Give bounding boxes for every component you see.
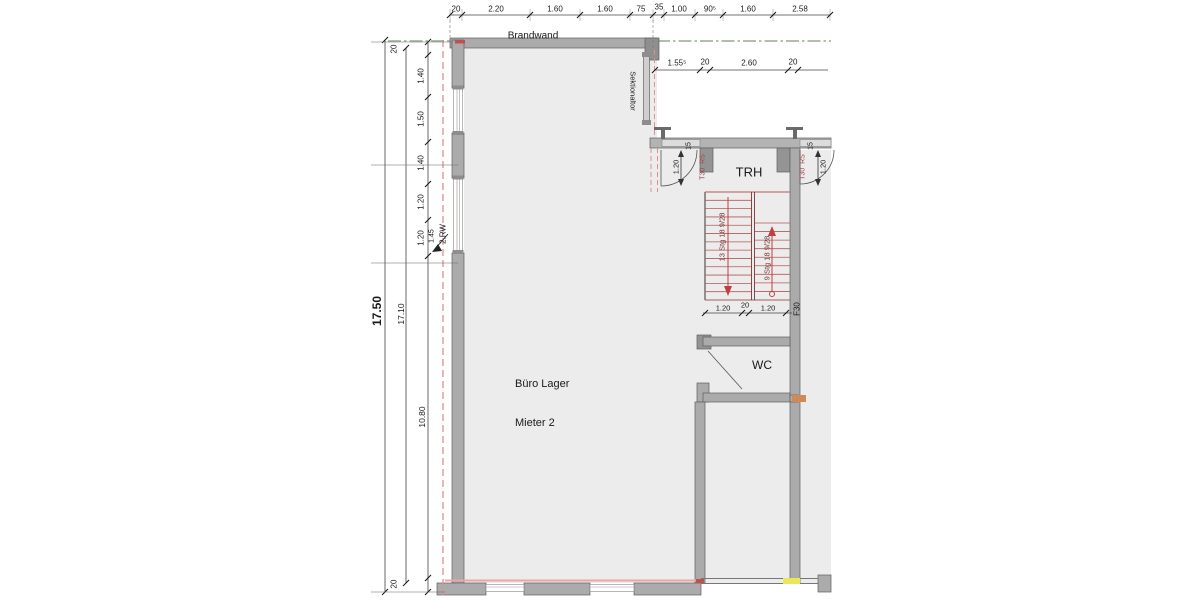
dim-top-2: 1.60 xyxy=(547,5,563,14)
stair-chain-0: 1.20 xyxy=(716,304,731,313)
trh-room-label: TRH xyxy=(736,165,763,180)
dim-ur-3: 20 xyxy=(789,58,798,67)
door-left-width: 1.20 xyxy=(672,160,681,175)
room-label-line1: Büro Lager xyxy=(515,378,569,391)
dim-ur-2: 2.60 xyxy=(741,59,757,68)
dim-left-seg-4: 1.20 xyxy=(417,230,426,246)
room-label-buero-lager: Büro Lager Mieter 2 xyxy=(515,352,569,443)
dim-top-1: 2.20 xyxy=(488,5,504,14)
door-right-width: 1.20 xyxy=(819,160,828,175)
door-left-type-label: T30 RS xyxy=(700,154,707,180)
dim-ur-0: 1.55⁵ xyxy=(668,59,687,68)
door-right-offset: 15 xyxy=(808,142,815,150)
dim-top-8: 1.60 xyxy=(740,5,756,14)
dim-left-lower: 10.80 xyxy=(417,406,427,427)
dim-left-bottom-offset: 20 xyxy=(390,580,399,589)
dim-rw: 1.45 xyxy=(429,229,436,243)
dim-top-7: 90⁵ xyxy=(704,5,716,14)
dim-top-9: 2.58 xyxy=(792,5,808,14)
stair-chain-1: 20 xyxy=(741,301,749,310)
plan-linework xyxy=(0,0,1200,600)
dim-top-0: 20 xyxy=(452,5,461,14)
dim-top-5: 35 xyxy=(655,3,664,12)
dim-top-6: 1.00 xyxy=(671,5,687,14)
dim-top-4: 75 xyxy=(637,5,646,14)
sektionaltor-leaf xyxy=(642,52,651,125)
brandwand-label: Brandwand xyxy=(508,31,559,42)
dim-left-seg-0: 1.40 xyxy=(417,68,426,84)
door-left-offset: 15 xyxy=(686,142,693,150)
room-label-line2: Mieter 2 xyxy=(515,417,569,430)
f30-wall-label: F30 xyxy=(793,302,802,316)
sektionaltor-label: Sektionaltor xyxy=(629,71,638,111)
dim-left-top-offset: 20 xyxy=(390,45,399,54)
door-right-type-label: T30 RS xyxy=(800,154,807,180)
wc-room-label: WC xyxy=(752,358,772,372)
escape-route-label: 2.RW xyxy=(439,224,448,244)
dim-left-inner: 17.10 xyxy=(396,303,406,324)
dim-left-total: 17.50 xyxy=(370,296,384,326)
stair-left-flight-label: 13 Stg 18 9/28 xyxy=(718,213,727,262)
dim-left-seg-3: 1.20 xyxy=(417,194,426,210)
stair-chain-2: 1.20 xyxy=(761,304,776,313)
floor-plan-canvas: 20 2.20 1.60 1.60 75 35 1.00 90⁵ 1.60 2.… xyxy=(0,0,1200,600)
dim-left-seg-2: 1.40 xyxy=(417,155,426,171)
dim-top-3: 1.60 xyxy=(597,5,613,14)
dim-ur-1: 20 xyxy=(701,58,710,67)
dim-left-seg-1: 1.50 xyxy=(417,111,426,127)
stair-right-flight-label: 9 Stg 18 9/28 xyxy=(763,236,772,281)
